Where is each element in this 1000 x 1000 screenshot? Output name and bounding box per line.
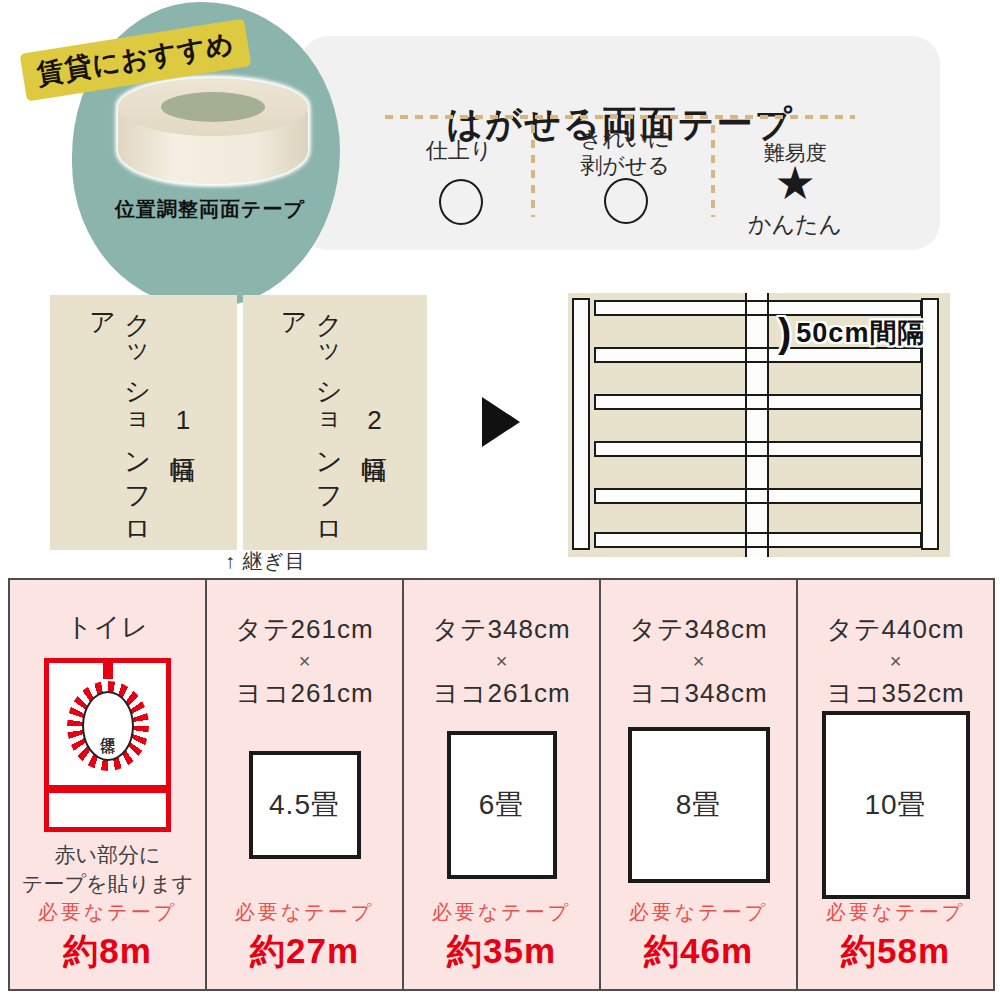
room-rectangle: 8畳 bbox=[628, 727, 770, 883]
tape-layout-diagram: ) 50cm間隔 bbox=[568, 293, 950, 557]
seam-note: ↑ 継ぎ目 bbox=[225, 548, 306, 575]
toilet-note-line1: 赤い部分に bbox=[22, 841, 193, 870]
table-cell-10jo: タテ440cm × ヨコ352cm 10畳 必要なテープ 約58m bbox=[796, 580, 993, 989]
times-icon: × bbox=[496, 650, 508, 673]
dashed-divider-vertical-1 bbox=[531, 125, 535, 217]
panel2-text: クッションフロア bbox=[278, 295, 348, 550]
tape-info: 必要なテープ 約46m bbox=[629, 899, 768, 975]
toilet-notes: 赤い部分に テープを貼ります bbox=[22, 841, 193, 899]
cell-size-line1: タテ440cm bbox=[826, 612, 964, 647]
toilet-tank-tab bbox=[103, 663, 113, 679]
toilet-tape-bar bbox=[49, 785, 166, 793]
arrow-right-icon bbox=[482, 397, 520, 447]
peel-label-line2: 剥がせる bbox=[560, 151, 690, 181]
tape-amount: 約46m bbox=[629, 928, 768, 975]
tape-strip-center-outline bbox=[745, 293, 769, 557]
circle-rating-icon bbox=[604, 178, 648, 224]
tape-info: 必要なテープ 約58m bbox=[826, 899, 965, 975]
tape-amount: 約27m bbox=[235, 928, 374, 975]
toilet-figure: 便器 bbox=[44, 658, 171, 832]
infographic-page: はがせる両面テープ 仕上り きれいに 剥がせる 難易度 ★ かんたん 位置調整両… bbox=[0, 0, 1000, 1000]
tape-needed-label: 必要なテープ bbox=[235, 899, 374, 926]
panel1-text: クッションフロア bbox=[86, 295, 156, 550]
times-icon: × bbox=[693, 650, 705, 673]
cell-size-line2: ヨコ261cm bbox=[432, 676, 570, 711]
tape-info: 必要なテープ 約8m bbox=[38, 899, 177, 975]
cell-size-line2: ヨコ261cm bbox=[235, 676, 373, 711]
room-rectangle: 10畳 bbox=[822, 711, 970, 899]
tape-strip-left bbox=[572, 298, 590, 550]
tape-needed-label: 必要なテープ bbox=[38, 899, 177, 926]
tape-amount: 約35m bbox=[432, 928, 571, 975]
cell-size-line2: ヨコ348cm bbox=[629, 676, 767, 711]
dashed-divider-horizontal bbox=[385, 115, 855, 119]
toilet-note-line2: テープを貼ります bbox=[22, 870, 193, 899]
toilet-bowl: 便器 bbox=[82, 691, 134, 761]
peel-label-line1: きれいに bbox=[560, 124, 690, 154]
times-icon: × bbox=[299, 650, 311, 673]
table-cell-toilet: トイレ 便器 赤い部分に テープを貼ります 必要なテープ 約8m bbox=[10, 580, 205, 989]
toilet-bowl-label: 便器 bbox=[97, 724, 118, 728]
table-cell-8jo: タテ348cm × ヨコ348cm 8畳 必要なテープ 約46m bbox=[599, 580, 796, 989]
tape-amount: 約58m bbox=[826, 928, 965, 975]
cell-size-line1: タテ348cm bbox=[629, 612, 767, 647]
circle-rating-icon bbox=[439, 179, 483, 225]
product-label: 位置調整両面テープ bbox=[95, 196, 325, 223]
cell-size-line1: タテ348cm bbox=[432, 612, 570, 647]
table-cell-6jo: タテ348cm × ヨコ261cm 6畳 必要なテープ 約35m bbox=[402, 580, 599, 989]
cushion-floor-panel-2: クッションフロア 2幅目 bbox=[243, 295, 427, 550]
tape-needed-label: 必要なテープ bbox=[432, 899, 571, 926]
bracket-icon: ) bbox=[778, 313, 791, 353]
star-icon: ★ bbox=[730, 160, 860, 206]
tape-info: 必要なテープ 約27m bbox=[235, 899, 374, 975]
table-cell-4-5jo: タテ261cm × ヨコ261cm 4.5畳 必要なテープ 約27m bbox=[205, 580, 402, 989]
times-icon: × bbox=[890, 650, 902, 673]
cell-title: トイレ bbox=[66, 610, 149, 645]
cell-size-line2: ヨコ352cm bbox=[826, 676, 964, 711]
room-rectangle: 6畳 bbox=[447, 731, 557, 879]
tape-info: 必要なテープ 約35m bbox=[432, 899, 571, 975]
tape-roll-image bbox=[118, 78, 308, 186]
spacing-label: 50cm間隔 bbox=[796, 315, 925, 351]
finish-label: 仕上り bbox=[394, 136, 524, 166]
tape-amount: 約8m bbox=[38, 928, 177, 975]
size-table: トイレ 便器 赤い部分に テープを貼ります 必要なテープ 約8m タテ261cm… bbox=[8, 578, 995, 991]
cell-size-line1: タテ261cm bbox=[235, 612, 373, 647]
panel1-number: 1幅目 bbox=[166, 405, 201, 441]
room-rectangle: 4.5畳 bbox=[249, 751, 361, 859]
tape-needed-label: 必要なテープ bbox=[629, 899, 768, 926]
spacing-note: ) 50cm間隔 bbox=[778, 313, 925, 353]
cushion-floor-panel-1: クッションフロア 1幅目 bbox=[50, 295, 237, 550]
difficulty-level: かんたん bbox=[730, 209, 860, 240]
panel2-number: 2幅目 bbox=[358, 405, 393, 441]
tape-needed-label: 必要なテープ bbox=[826, 899, 965, 926]
tape-roll-hole bbox=[161, 92, 265, 122]
dashed-divider-vertical-2 bbox=[711, 125, 715, 217]
feature-box: はがせる両面テープ 仕上り きれいに 剥がせる 難易度 ★ かんたん bbox=[300, 36, 940, 250]
